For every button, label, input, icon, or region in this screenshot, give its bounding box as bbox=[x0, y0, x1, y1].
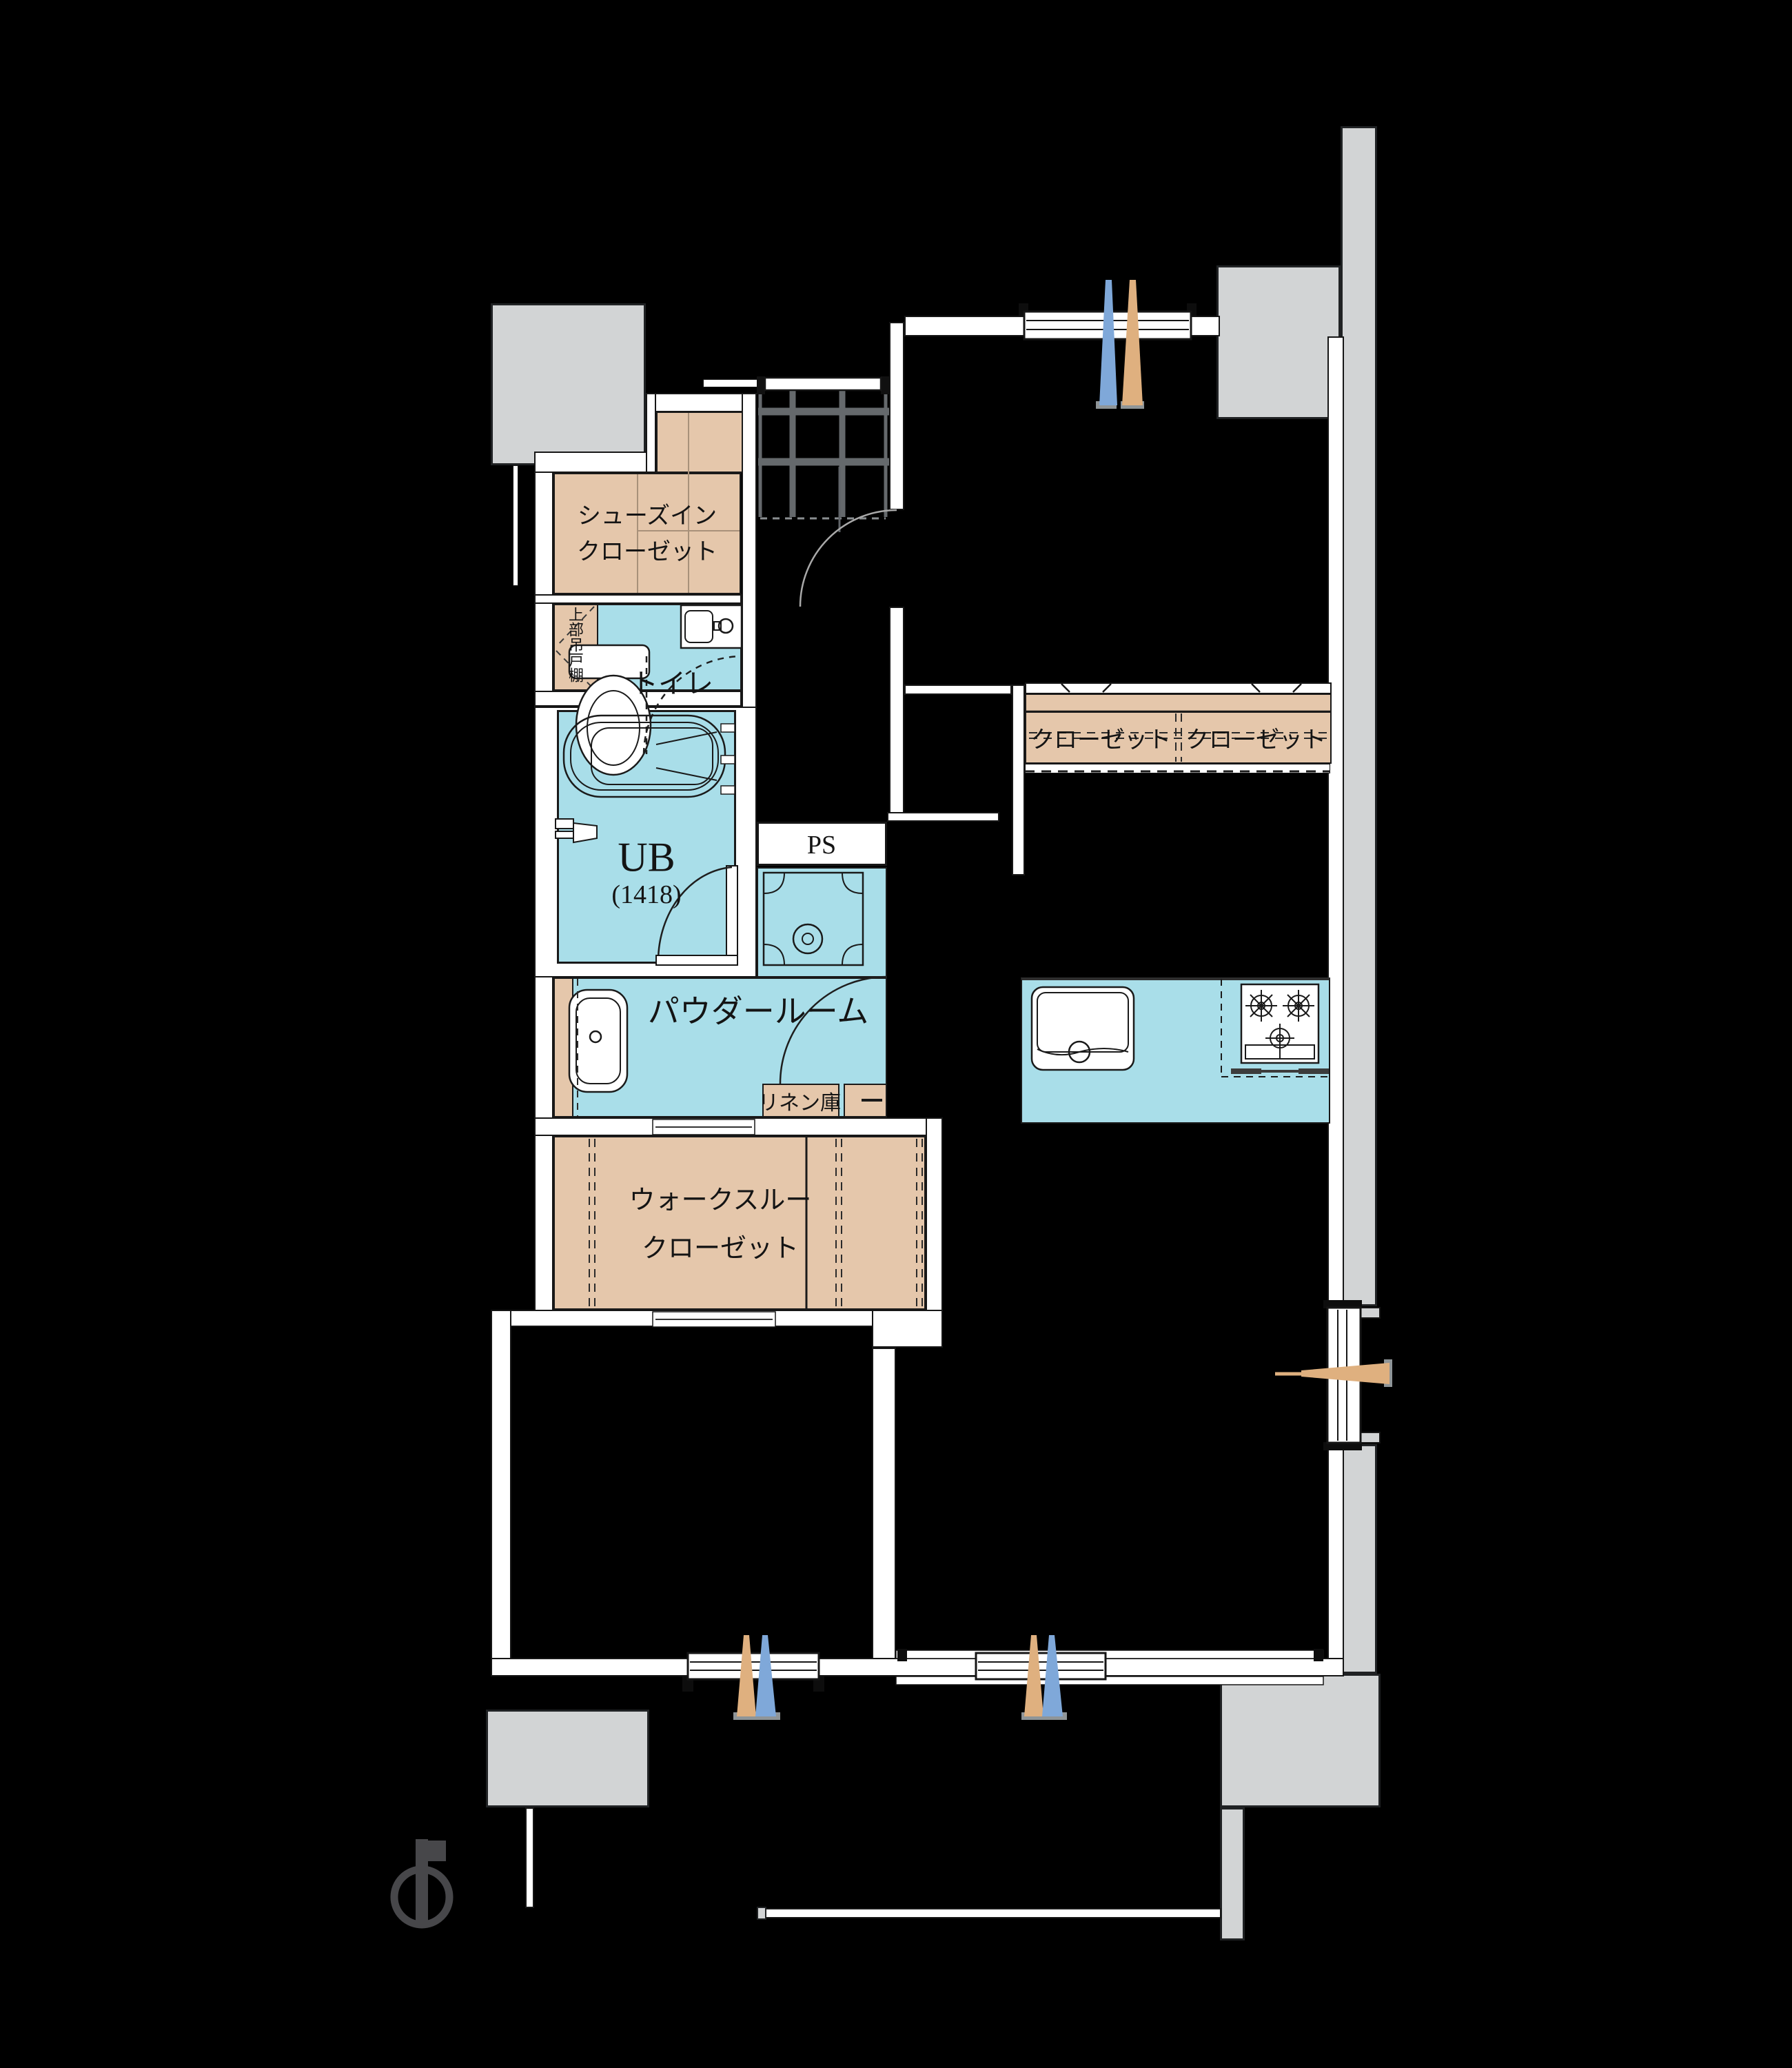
porch-divider-line bbox=[513, 465, 518, 586]
vanity-side-panel bbox=[553, 977, 573, 1117]
closet-band-upper-strip bbox=[1025, 693, 1332, 713]
balcony-slab-top-left bbox=[491, 303, 646, 465]
label-shoes-in-closet-line2: クローゼット bbox=[577, 533, 717, 567]
wall-bottom-exterior bbox=[491, 1658, 1344, 1676]
concrete-column-right-lower bbox=[1341, 1444, 1377, 1674]
concrete-mass-top-right bbox=[1216, 265, 1341, 419]
vent-arrows-bottom-right-window bbox=[1021, 1635, 1067, 1720]
compass-icon bbox=[394, 1839, 449, 1927]
label-upper-shelf: 上部吊戸棚 bbox=[567, 607, 583, 682]
window-top bbox=[1019, 303, 1197, 339]
shoes-in-closet-notch bbox=[656, 412, 743, 473]
balcony-edge-cap bbox=[757, 1907, 766, 1920]
walk-through-closet-area bbox=[553, 1136, 926, 1310]
wall-top-bedroom1-right bbox=[1189, 316, 1220, 336]
floor-plan-canvas: シューズイン クローゼット 上部吊戸棚 トイレ UB (1418) PS パウダ… bbox=[0, 0, 1792, 2068]
vent-arrow-right-window bbox=[1275, 1359, 1392, 1387]
label-walk-through-line2: クローゼット bbox=[642, 1227, 799, 1265]
wall-entrance-right-lower bbox=[889, 607, 904, 822]
entrance-door bbox=[757, 376, 889, 394]
wall-hall-vertical bbox=[1012, 685, 1025, 875]
washer-alcove-area bbox=[757, 867, 887, 977]
label-pipe-space: PS bbox=[807, 830, 836, 860]
wall-top-notch bbox=[646, 393, 757, 412]
wall-right-lower bbox=[1327, 1444, 1344, 1676]
label-unit-bath: UB bbox=[618, 834, 675, 882]
closet-door-track bbox=[1025, 682, 1332, 694]
wall-bedroom1-bottom bbox=[904, 685, 1012, 695]
window-right bbox=[1323, 1300, 1380, 1450]
concrete-column-right-upper bbox=[1341, 126, 1377, 1306]
balcony-edge-strip-bottom bbox=[762, 1908, 1221, 1918]
label-toilet: トイレ bbox=[631, 661, 713, 701]
label-powder-room: パウダールーム bbox=[648, 986, 869, 1032]
wall-bedroom2-ldk bbox=[872, 1348, 896, 1676]
wall-left-lower bbox=[491, 1310, 511, 1676]
balcony-divider-strip-right bbox=[1220, 1807, 1245, 1940]
kitchen-counter-area bbox=[1021, 977, 1330, 1124]
balcony-slab-bottom-left bbox=[486, 1710, 649, 1807]
label-closet-right: クローゼット bbox=[1185, 721, 1326, 755]
label-unit-bath-size: (1418) bbox=[611, 880, 681, 910]
entrance-tile-grid bbox=[758, 389, 889, 532]
wall-entrance-right-upper bbox=[889, 322, 904, 510]
wall-top-bedroom1-left bbox=[904, 316, 1027, 336]
balcony-divider-line-left bbox=[525, 1807, 534, 1908]
wall-wtc-jog bbox=[872, 1310, 943, 1348]
shelf-box-right-of-linen bbox=[844, 1084, 887, 1117]
label-closet-left: クローゼット bbox=[1030, 721, 1171, 755]
wall-hall-bottom bbox=[887, 812, 999, 822]
label-shoes-in-closet-line1: シューズイン bbox=[578, 497, 717, 531]
bedroom1-door-arc bbox=[800, 510, 897, 607]
label-linen-storage: リネン庫 bbox=[758, 1086, 841, 1116]
wall-right-upper bbox=[1327, 336, 1344, 1306]
wall-shoecloset-toilet bbox=[534, 594, 742, 604]
vent-arrows-top-window bbox=[1096, 280, 1144, 409]
balcony-slab-bottom-right bbox=[1220, 1674, 1381, 1807]
porch-step-line bbox=[703, 379, 758, 387]
wall-top-shoecloset bbox=[534, 452, 656, 473]
wall-notch-connector bbox=[646, 393, 656, 473]
vent-arrows-bottom-left-window bbox=[733, 1635, 780, 1720]
label-walk-through-line1: ウォークスルー bbox=[629, 1179, 812, 1217]
wall-under-linen bbox=[534, 1117, 943, 1136]
under-closet-strip bbox=[1025, 764, 1330, 773]
